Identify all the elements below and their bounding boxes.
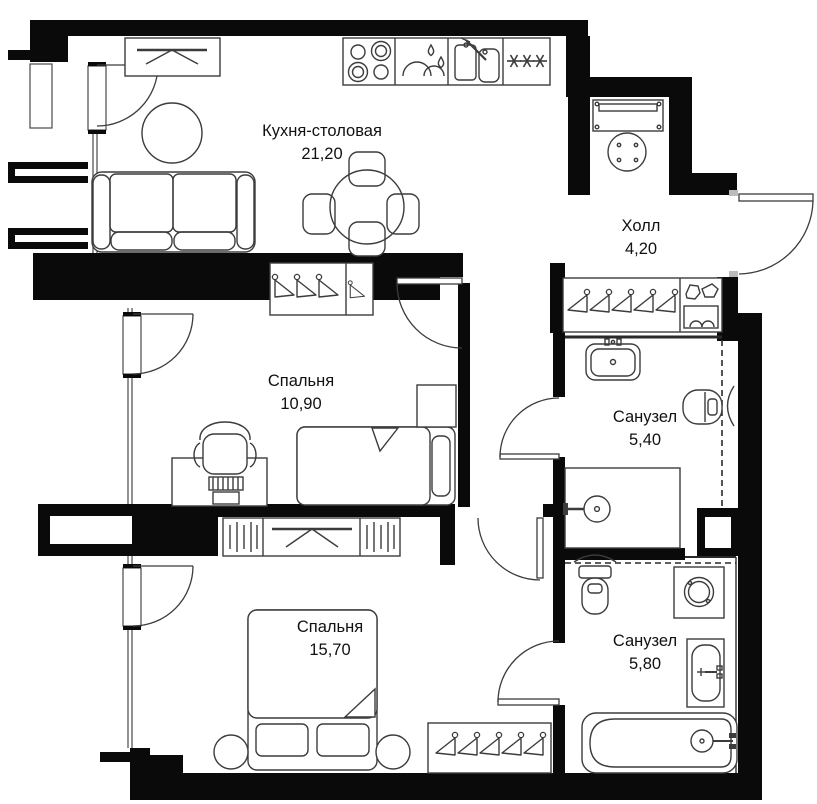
bedroom1-door-leaf bbox=[397, 278, 462, 284]
wall-right-v2 bbox=[669, 97, 692, 173]
wall-bath1-left-bottom bbox=[553, 457, 565, 643]
bedroom2-door-arc bbox=[478, 518, 540, 580]
office-chair bbox=[194, 422, 256, 474]
bedroom1-balcony-door bbox=[133, 314, 193, 374]
entrance-door-leaf bbox=[739, 194, 813, 201]
fin-b2 bbox=[8, 242, 88, 249]
entrance-door bbox=[729, 190, 813, 277]
chair bbox=[349, 222, 385, 256]
fin-top bbox=[8, 50, 62, 60]
hall-wardrobe bbox=[563, 278, 722, 332]
fin-c1 bbox=[38, 504, 132, 516]
bedroom2-door bbox=[478, 518, 543, 580]
washbasin-icon bbox=[687, 639, 724, 707]
bedroom2-area: 15,70 bbox=[309, 641, 350, 659]
wall-bottom-main bbox=[183, 773, 762, 800]
bedroom1-wardrobe bbox=[270, 263, 373, 315]
bathtub-icon bbox=[582, 713, 737, 773]
wall-bottom-step1 bbox=[150, 755, 183, 800]
fin-b3 bbox=[8, 228, 15, 249]
kitchen-window-frame bbox=[88, 66, 106, 130]
wall-bottom-step2 bbox=[130, 748, 150, 800]
fin-b1 bbox=[8, 228, 88, 235]
bathroom1-label: Санузел bbox=[613, 408, 677, 426]
tv-dresser bbox=[223, 518, 400, 556]
bedroom1-area: 10,90 bbox=[280, 395, 321, 413]
hall-label: Холл bbox=[622, 217, 661, 235]
bedroom2-balcony-door bbox=[133, 566, 193, 626]
bedroom2-wardrobe bbox=[428, 723, 551, 773]
duct-shaft-inner bbox=[705, 517, 731, 548]
tv-console bbox=[125, 38, 220, 76]
toilet-icon bbox=[683, 390, 722, 424]
wall-top bbox=[30, 20, 588, 36]
toilet-icon bbox=[579, 566, 611, 614]
towel-radiator-icon bbox=[728, 386, 735, 426]
wall-bath-divider bbox=[565, 548, 685, 560]
fin-c3 bbox=[38, 504, 50, 556]
round-stool bbox=[608, 133, 646, 171]
entrance-door-arc bbox=[739, 201, 813, 274]
bedroom2-door-leaf bbox=[537, 518, 543, 578]
kitchen-label: Кухня-столовая bbox=[262, 122, 382, 140]
round-nightstand-left bbox=[214, 735, 248, 769]
wall-band1-a bbox=[33, 253, 270, 300]
fin-d bbox=[100, 752, 130, 762]
console-table bbox=[593, 100, 663, 131]
wall-right-h1 bbox=[566, 77, 692, 97]
wall-band2-column bbox=[440, 505, 455, 565]
bedroom1-label: Спальня bbox=[268, 372, 334, 390]
entrance-jamb-bottom bbox=[729, 271, 738, 277]
bathroom2-door-leaf bbox=[498, 699, 559, 705]
wall-right-main bbox=[738, 313, 762, 800]
shower-icon bbox=[563, 468, 680, 548]
kitchen-area: 21,20 bbox=[301, 145, 342, 163]
sofa bbox=[92, 172, 255, 252]
bathroom2-label: Санузел bbox=[613, 632, 677, 650]
bathroom2-area: 5,80 bbox=[629, 655, 661, 673]
wall-bath2-left-bottom bbox=[553, 705, 565, 773]
entrance-jamb-top bbox=[729, 190, 738, 196]
bedroom2-furniture bbox=[214, 518, 551, 773]
bedroom1-window-frame bbox=[123, 316, 141, 374]
wall-right-h2 bbox=[669, 173, 737, 195]
bathroom1-door-leaf bbox=[500, 454, 559, 459]
chair bbox=[349, 152, 385, 186]
bathroom1-door bbox=[500, 398, 559, 459]
bathroom2-door-arc bbox=[498, 641, 559, 702]
coffee-table bbox=[142, 103, 202, 163]
wall-niche-left bbox=[568, 97, 590, 195]
bathroom2-door bbox=[498, 641, 559, 705]
dining-table-set bbox=[303, 152, 419, 256]
wall-band1-c bbox=[373, 253, 440, 300]
round-nightstand-right bbox=[376, 735, 410, 769]
wall-band1-d bbox=[440, 253, 463, 277]
bedroom2-label: Спальня bbox=[297, 618, 363, 636]
washbasin-icon bbox=[586, 339, 640, 380]
floorplan-canvas: Кухня-столовая 21,20 Холл 4,20 Спальня 1… bbox=[0, 0, 817, 804]
fin-a2 bbox=[8, 176, 88, 183]
fin-c2 bbox=[38, 544, 132, 556]
bedroom1-nightstand bbox=[417, 385, 456, 427]
bedroom2-window-frame bbox=[123, 568, 141, 626]
kitchen-outer-pier bbox=[30, 64, 52, 128]
single-bed bbox=[297, 427, 455, 505]
fin-a1 bbox=[8, 162, 88, 169]
bathroom1-area: 5,40 bbox=[629, 431, 661, 449]
hall-area: 4,20 bbox=[625, 240, 657, 258]
fin-a3 bbox=[8, 162, 15, 183]
wall-bedroom1-right bbox=[458, 283, 470, 507]
wall-band2-block bbox=[132, 504, 218, 556]
bathroom1-door-arc bbox=[500, 398, 559, 457]
washing-machine-icon bbox=[674, 567, 724, 618]
